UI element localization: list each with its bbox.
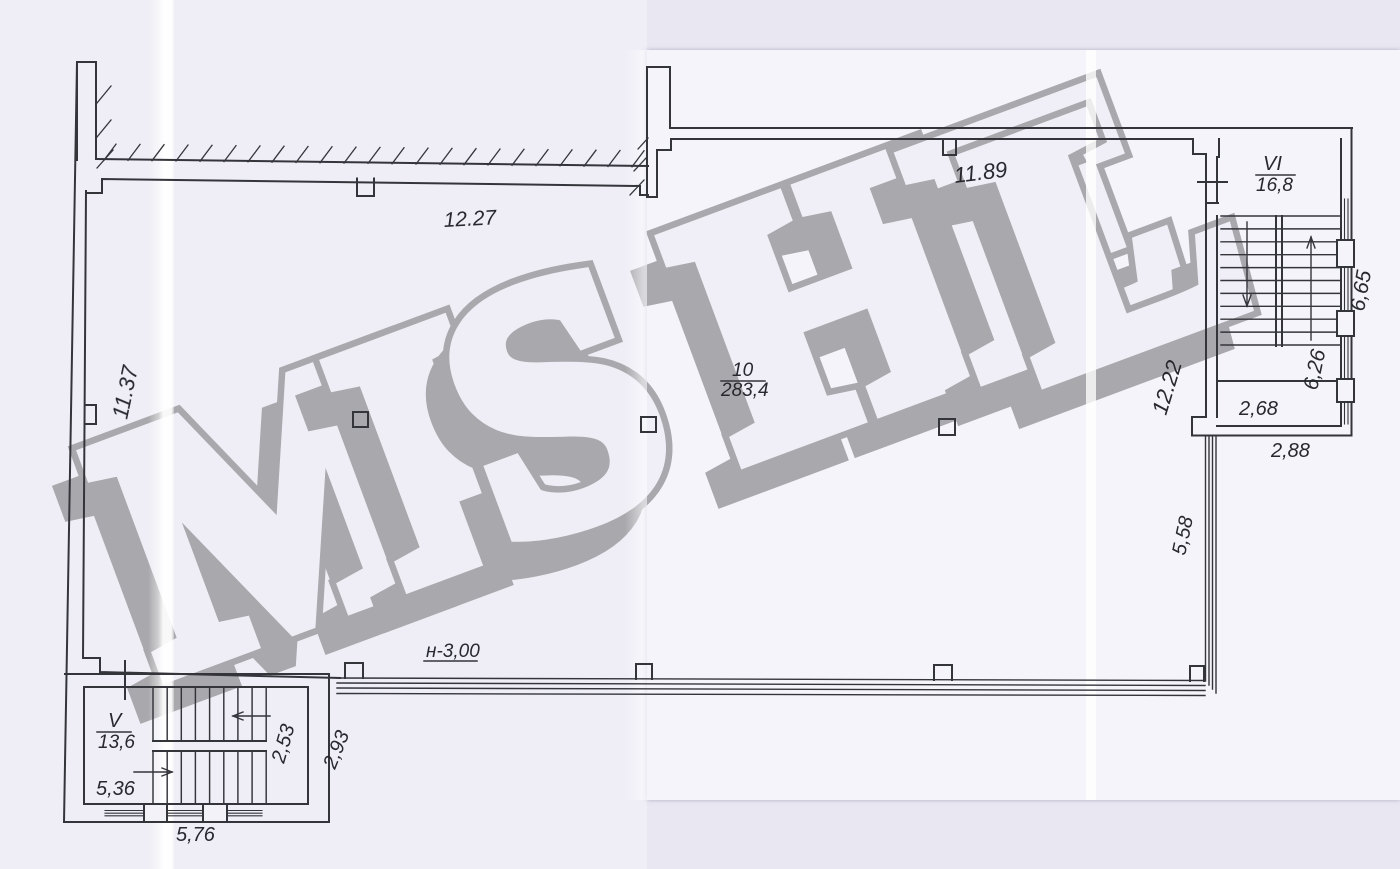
svg-text:10: 10	[732, 360, 754, 381]
svg-text:2,53: 2,53	[267, 722, 299, 766]
svg-text:V: V	[108, 710, 123, 732]
svg-text:2,68: 2,68	[1238, 398, 1278, 420]
svg-text:283,4: 283,4	[720, 380, 769, 401]
svg-text:н-3,00: н-3,00	[426, 641, 480, 662]
svg-text:VI: VI	[1263, 153, 1282, 175]
svg-text:2,88: 2,88	[1270, 440, 1310, 462]
svg-text:5,58: 5,58	[1168, 514, 1198, 557]
svg-text:5,36: 5,36	[96, 778, 136, 800]
svg-text:12.27: 12.27	[443, 206, 498, 232]
svg-text:6,26: 6,26	[1299, 347, 1330, 392]
svg-text:2,93: 2,93	[319, 728, 354, 773]
svg-text:5,76: 5,76	[176, 824, 216, 846]
svg-text:11.89: 11.89	[953, 157, 1009, 188]
svg-text:16,8: 16,8	[1256, 175, 1293, 196]
svg-text:13,6: 13,6	[98, 732, 135, 753]
svg-text:11.37: 11.37	[107, 363, 143, 421]
svg-text:12.22: 12.22	[1147, 357, 1187, 417]
